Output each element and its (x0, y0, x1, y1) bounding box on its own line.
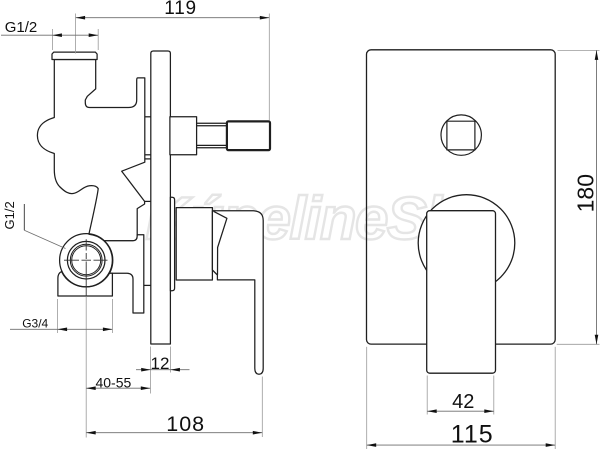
svg-text:40-55: 40-55 (95, 374, 131, 390)
svg-text:42: 42 (452, 391, 474, 413)
svg-text:115: 115 (451, 420, 494, 448)
svg-text:119: 119 (164, 0, 197, 19)
svg-text:G1/2: G1/2 (2, 201, 17, 229)
svg-text:G3/4: G3/4 (22, 317, 48, 331)
svg-text:G1/2: G1/2 (5, 19, 38, 36)
svg-text:12: 12 (151, 354, 170, 373)
svg-text:180: 180 (573, 174, 599, 212)
svg-text:108: 108 (166, 412, 205, 436)
